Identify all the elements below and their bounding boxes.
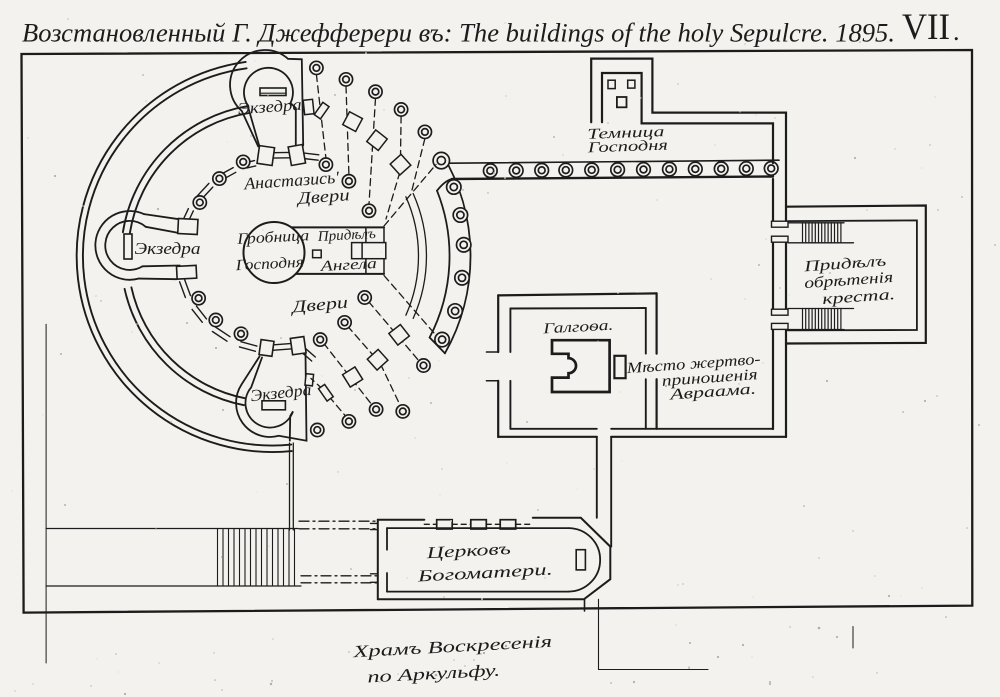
svg-text:Придѣлъ: Придѣлъ <box>316 226 376 245</box>
svg-text:VII: VII <box>902 7 950 48</box>
svg-text:Господня: Господня <box>234 254 304 275</box>
svg-text:Ангела: Ангела <box>319 256 377 275</box>
svg-text:Господня: Господня <box>586 138 668 157</box>
svg-text:Экзедра: Экзедра <box>135 239 201 258</box>
svg-text:Возстановленный Г. Джефферер: Возстановленный Г. Джефферери въ: The bu… <box>22 19 895 48</box>
svg-text:Двери: Двери <box>295 185 351 208</box>
svg-text:.: . <box>953 17 960 46</box>
